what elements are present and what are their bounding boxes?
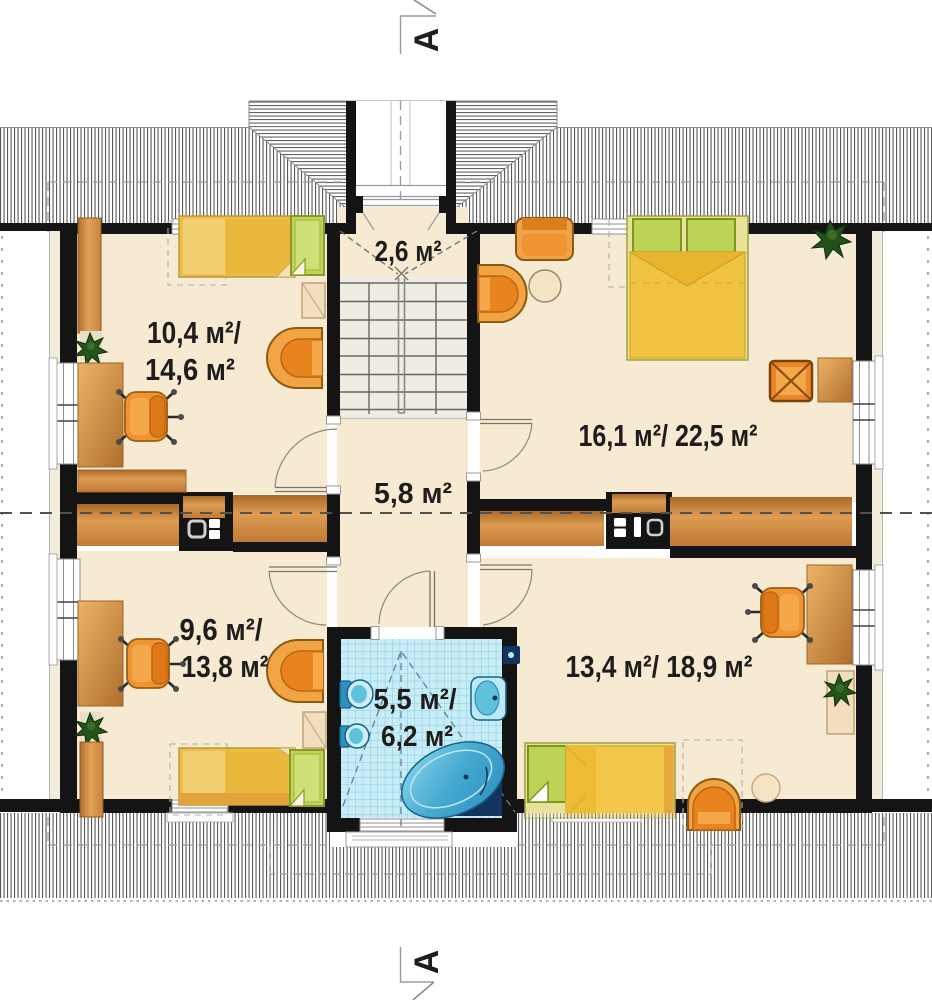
svg-text:5,8 м²: 5,8 м² bbox=[374, 478, 452, 510]
svg-text:2,6 м²: 2,6 м² bbox=[375, 236, 442, 268]
svg-text:A: A bbox=[408, 28, 446, 53]
svg-text:9,6 м²/: 9,6 м²/ bbox=[180, 612, 263, 647]
svg-text:6,2 м²: 6,2 м² bbox=[381, 721, 453, 753]
svg-text:13,8 м²: 13,8 м² bbox=[182, 649, 269, 684]
svg-text:5,5 м²/: 5,5 м²/ bbox=[374, 684, 457, 716]
svg-text:16,1 м²/ 22,5 м²: 16,1 м²/ 22,5 м² bbox=[579, 418, 758, 453]
svg-text:13,4 м²/ 18,9 м²: 13,4 м²/ 18,9 м² bbox=[566, 649, 753, 684]
svg-text:A: A bbox=[408, 950, 446, 975]
svg-text:14,6 м²: 14,6 м² bbox=[145, 352, 235, 387]
svg-text:10,4 м²/: 10,4 м²/ bbox=[147, 315, 241, 350]
